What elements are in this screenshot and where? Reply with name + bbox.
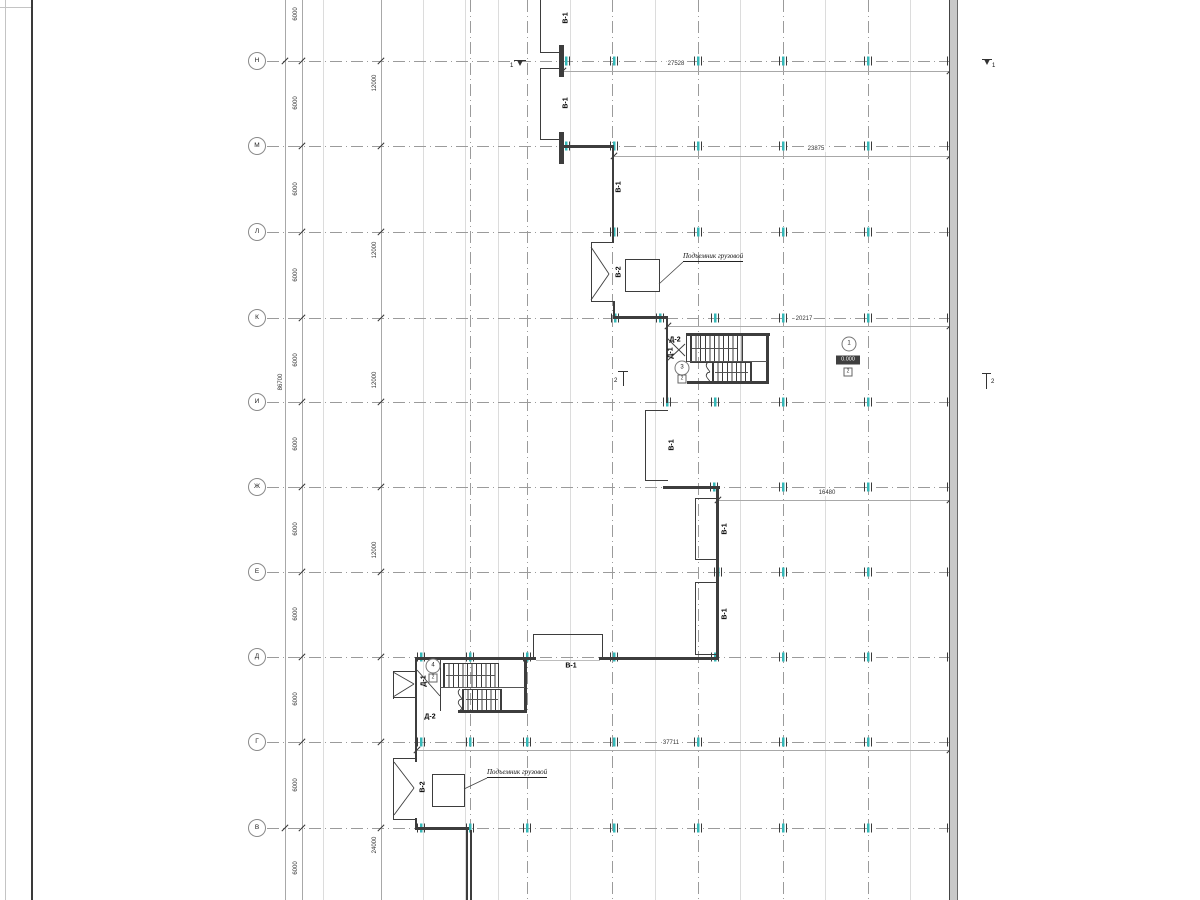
dim-line — [563, 71, 950, 72]
grid-tick — [694, 824, 702, 833]
grid-tick — [779, 483, 787, 492]
opening-label: В-1 — [722, 523, 729, 534]
dim-6000-label: 6000 — [293, 6, 299, 21]
wall-segment — [524, 660, 527, 712]
grid-tick — [466, 738, 474, 747]
floor-type-box: 2 — [678, 375, 687, 384]
wall-segment — [393, 819, 415, 820]
sheet-frame-line — [31, 0, 33, 900]
dim-6000-label: 6000 — [293, 95, 299, 110]
wall-segment — [613, 316, 668, 319]
opening-label: Д-1 — [668, 347, 675, 358]
grid-tick — [694, 228, 702, 237]
opening-label: В-1 — [563, 97, 570, 108]
callout-leader-line — [464, 778, 487, 789]
grid-tick — [864, 824, 872, 833]
dim-6000-label: 6000 — [293, 267, 299, 282]
grid-column-line — [470, 0, 471, 900]
grid-column-line — [698, 0, 699, 900]
wall-segment — [645, 410, 668, 411]
wall-segment — [393, 758, 415, 759]
grid-tick — [864, 483, 872, 492]
grid-tick — [779, 228, 787, 237]
stair-direction-line — [692, 348, 737, 349]
section-marker-number: 1 — [510, 63, 513, 69]
dim-label: 27528 — [667, 61, 686, 67]
opening-label: Д-1 — [421, 675, 428, 686]
opening-label: Д-2 — [669, 337, 680, 344]
minor-grid-line — [423, 0, 424, 900]
wall-segment — [612, 145, 614, 243]
grid-row-circle: В — [248, 819, 266, 837]
grid-tick — [779, 57, 787, 66]
grid-tick — [864, 568, 872, 577]
dim-label: 16480 — [818, 490, 837, 496]
minor-grid-line — [498, 0, 499, 900]
dim-6000-label: 6000 — [293, 436, 299, 451]
stair-direction-line — [446, 675, 495, 676]
section-marker-number: 2 — [991, 379, 994, 385]
wall-segment — [393, 671, 415, 672]
wall-segment — [602, 634, 603, 658]
grid-tick — [779, 398, 787, 407]
grid-row-circle: К — [248, 309, 266, 327]
grid-tick — [864, 398, 872, 407]
stair-flight — [690, 335, 743, 363]
elevation-mark: 0.000 — [836, 356, 860, 365]
wall-segment — [686, 333, 687, 362]
wall-segment — [663, 486, 720, 489]
grid-tick — [864, 228, 872, 237]
grid-tick — [610, 57, 618, 66]
grid-tick — [864, 738, 872, 747]
grid-tick — [864, 314, 872, 323]
wall-segment — [666, 318, 668, 403]
grid-tick — [779, 738, 787, 747]
exterior-wall-right — [949, 0, 958, 900]
dim-6000-label: 6000 — [293, 691, 299, 706]
grid-tick — [523, 824, 531, 833]
room-number-circle: 1 — [842, 337, 857, 352]
grid-row-circle: Н — [248, 52, 266, 70]
floor-plan-canvas: НМЛКИЖЕДГВ867006000600060006000600060006… — [0, 0, 1200, 900]
wall-segment — [766, 333, 769, 383]
grid-tick — [694, 142, 702, 151]
minor-grid-line — [655, 0, 656, 900]
dim-label: 23875 — [807, 146, 826, 152]
dim-6000-label: 6000 — [293, 181, 299, 196]
section-marker-number: 2 — [614, 378, 617, 384]
grid-column-line — [612, 0, 613, 900]
grid-tick — [523, 738, 531, 747]
wall-segment — [591, 242, 614, 243]
stair-flight — [712, 362, 752, 384]
dim-12000-label: 12000 — [372, 371, 378, 390]
grid-row-circle: М — [248, 137, 266, 155]
floor-type-box: 2 — [429, 674, 438, 683]
grid-tick — [779, 568, 787, 577]
wall-segment — [695, 582, 696, 655]
dim-12000-label: 12000 — [372, 541, 378, 560]
stair-direction-line — [715, 372, 748, 373]
wall-segment — [540, 68, 541, 140]
wall-segment — [393, 758, 394, 820]
opening-label: Д-2 — [424, 714, 435, 721]
wall-segment — [393, 671, 394, 699]
grid-row-circle: Ж — [248, 478, 266, 496]
section-arrowhead — [984, 60, 989, 65]
grid-tick — [779, 314, 787, 323]
section-marker-stem — [986, 373, 987, 389]
grid-column-line — [527, 0, 528, 900]
grid-tick — [610, 824, 618, 833]
grid-row-line — [267, 487, 957, 488]
freight-lift-shaft — [625, 259, 660, 292]
stair-landing-divider — [440, 687, 525, 688]
opening-label: В-1 — [669, 439, 676, 450]
wall-segment — [533, 634, 534, 658]
sheet-frame-top-line — [0, 7, 31, 8]
door-leaf-line — [393, 684, 414, 697]
wall-segment — [470, 830, 472, 900]
wall-segment — [695, 498, 696, 560]
dim-12000-label: 12000 — [372, 74, 378, 93]
dim-line — [718, 500, 950, 501]
dim-12000-label: 12000 — [372, 241, 378, 260]
dim-label: 20217 — [795, 316, 814, 322]
wall-segment — [716, 487, 719, 659]
wall-segment — [415, 827, 469, 830]
dim-line — [417, 750, 950, 751]
door-leaf-line — [591, 247, 609, 274]
section-marker-bar — [982, 59, 992, 60]
grid-tick — [417, 738, 425, 747]
grid-row-circle: Л — [248, 223, 266, 241]
grid-tick — [711, 314, 719, 323]
opening-label: В-1 — [563, 12, 570, 23]
freight-lift-shaft — [432, 774, 465, 807]
dim-6000-label: 6000 — [293, 521, 299, 536]
grid-tick — [779, 653, 787, 662]
wall-segment — [695, 654, 717, 655]
minor-grid-line — [825, 0, 826, 900]
sheet-frame-line — [5, 0, 6, 900]
stair-break-line — [706, 362, 709, 383]
minor-grid-line — [465, 0, 466, 900]
dim-chain-total-line — [285, 0, 286, 900]
dim-label: 37711 — [662, 740, 680, 746]
wall-segment — [695, 498, 717, 499]
wall-segment — [591, 301, 615, 302]
minor-grid-line — [323, 0, 324, 900]
grid-row-circle: Е — [248, 563, 266, 581]
grid-tick — [779, 824, 787, 833]
grid-tick — [779, 142, 787, 151]
grid-column-line — [868, 0, 869, 900]
minor-grid-line — [740, 0, 741, 900]
opening-label: В-1 — [616, 181, 623, 192]
dim-12000-label: 24000 — [372, 836, 378, 855]
wall-segment — [695, 559, 717, 560]
minor-grid-line — [570, 0, 571, 900]
dim-total-label: 86700 — [278, 373, 284, 392]
grid-tick — [864, 57, 872, 66]
grid-tick — [864, 142, 872, 151]
minor-grid-line — [910, 0, 911, 900]
dim-line — [614, 156, 950, 157]
callout-leader-line — [659, 262, 683, 284]
wall-segment — [466, 830, 468, 900]
section-marker-bar — [514, 60, 526, 61]
door-leaf-line — [394, 788, 414, 815]
opening-label: В-2 — [616, 266, 623, 277]
wall-segment — [540, 0, 541, 53]
dim-6000-label: 6000 — [293, 860, 299, 875]
wall-segment — [591, 242, 592, 302]
dim-6000-label: 6000 — [293, 606, 299, 621]
wall-segment — [559, 45, 564, 77]
wall-segment — [645, 410, 646, 481]
wall-segment — [393, 697, 415, 698]
dim-chain-6000-line — [302, 0, 303, 900]
stair-landing-divider — [687, 361, 767, 362]
grid-row-line — [267, 572, 957, 573]
grid-row-circle: Д — [248, 648, 266, 666]
room-number-circle: 4 — [426, 659, 441, 674]
wall-segment — [562, 145, 614, 148]
lift-callout-text: Подъемник грузовой — [487, 768, 547, 778]
grid-tick — [864, 653, 872, 662]
wall-segment — [695, 582, 717, 583]
wall-segment — [415, 658, 417, 762]
grid-tick — [711, 398, 719, 407]
opening-label: В-2 — [420, 781, 427, 792]
door-leaf-line — [393, 672, 414, 684]
grid-column-line — [783, 0, 784, 900]
wall-segment — [533, 634, 603, 635]
room-number-circle: 3 — [675, 361, 690, 376]
grid-row-circle: Г — [248, 733, 266, 751]
wall-segment — [559, 132, 564, 164]
stair-flight — [462, 689, 502, 711]
plan-linework-overlay — [0, 0, 1200, 900]
dim-line — [668, 326, 950, 327]
wall-segment — [645, 480, 668, 481]
grid-tick — [610, 738, 618, 747]
opening-label: В-1 — [565, 663, 576, 670]
grid-row-circle: И — [248, 393, 266, 411]
door-threshold — [536, 660, 600, 661]
wall-segment — [599, 657, 719, 660]
lift-callout-text: Подъемник грузовой — [683, 252, 743, 262]
door-leaf-line — [394, 762, 414, 788]
door-leaf-line — [591, 274, 609, 300]
section-marker-stem — [623, 371, 624, 386]
stair-direction-line — [466, 699, 498, 700]
grid-row-line — [267, 402, 957, 403]
floor-type-box: 2 — [844, 368, 853, 377]
grid-tick — [694, 738, 702, 747]
dim-chain-12000-line — [381, 0, 382, 900]
opening-label: В-1 — [722, 608, 729, 619]
dim-6000-label: 6000 — [293, 777, 299, 792]
section-marker-number: 1 — [992, 63, 995, 69]
grid-tick — [694, 57, 702, 66]
dim-6000-label: 6000 — [293, 352, 299, 367]
